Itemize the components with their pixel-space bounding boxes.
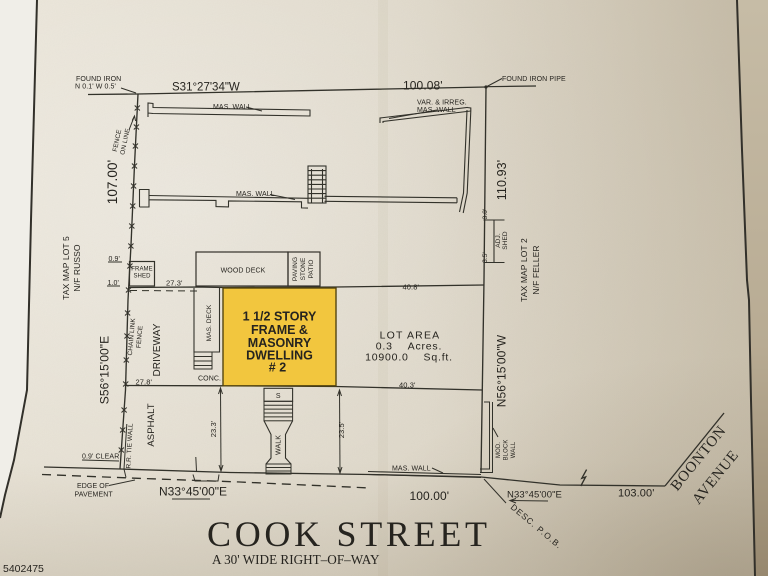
svg-text:WALL: WALL bbox=[511, 441, 517, 458]
svg-text:23.5': 23.5' bbox=[337, 421, 346, 438]
svg-text:1.0': 1.0' bbox=[108, 280, 119, 287]
svg-text:40.8': 40.8' bbox=[403, 283, 420, 292]
svg-text:TAX MAP LOT 5: TAX MAP LOT 5 bbox=[61, 236, 71, 300]
svg-text:DRIVEWAY: DRIVEWAY bbox=[152, 323, 163, 376]
svg-text:ASPHALT: ASPHALT bbox=[146, 403, 157, 446]
svg-text:FOUND IRON PIPE: FOUND IRON PIPE bbox=[502, 76, 566, 83]
svg-text:3.5': 3.5' bbox=[482, 252, 489, 263]
svg-text:MAS. WALL: MAS. WALL bbox=[417, 107, 456, 114]
svg-text:WALK: WALK bbox=[276, 435, 283, 455]
svg-text:PATIO: PATIO bbox=[308, 259, 315, 278]
svg-text:27.8': 27.8' bbox=[136, 378, 153, 387]
svg-text:40.3': 40.3' bbox=[399, 381, 416, 390]
svg-text:1 1/2 STORY: 1 1/2 STORY bbox=[243, 310, 317, 324]
svg-text:5402475: 5402475 bbox=[3, 563, 44, 575]
svg-text:MOD.: MOD. bbox=[496, 442, 502, 458]
svg-text:BLOCK: BLOCK bbox=[504, 440, 510, 461]
svg-text:S56°15'00"E: S56°15'00"E bbox=[98, 336, 112, 405]
svg-text:MAS. DECK: MAS. DECK bbox=[206, 304, 213, 341]
svg-text:FRAME: FRAME bbox=[131, 267, 153, 273]
svg-text:ADJ.: ADJ. bbox=[495, 233, 502, 248]
svg-text:100.00': 100.00' bbox=[410, 489, 450, 503]
svg-text:110.93': 110.93' bbox=[495, 160, 509, 200]
svg-text:10900.0 Sq.ft.: 10900.0 Sq.ft. bbox=[365, 352, 453, 364]
svg-text:3.0': 3.0' bbox=[482, 209, 489, 220]
svg-text:N33°45'00"E: N33°45'00"E bbox=[507, 490, 562, 501]
svg-text:0.9' CLEAR: 0.9' CLEAR bbox=[82, 454, 119, 461]
svg-text:S: S bbox=[276, 393, 281, 400]
svg-text:N 0.1' W 0.5': N 0.1' W 0.5' bbox=[75, 84, 116, 91]
svg-text:107.00': 107.00' bbox=[105, 160, 120, 205]
svg-text:# 2: # 2 bbox=[269, 361, 286, 375]
svg-text:TAX MAP LOT 2: TAX MAP LOT 2 bbox=[519, 238, 529, 302]
svg-text:0.9': 0.9' bbox=[109, 256, 120, 263]
svg-text:SHED: SHED bbox=[133, 274, 151, 280]
svg-text:N56°15'00"W: N56°15'00"W bbox=[495, 334, 509, 407]
svg-text:PAVEMENT: PAVEMENT bbox=[75, 492, 114, 499]
svg-text:N/F FELLER: N/F FELLER bbox=[531, 245, 541, 294]
svg-text:MAS. WALL: MAS. WALL bbox=[236, 191, 275, 198]
svg-text:VAR. & IRREG.: VAR. & IRREG. bbox=[417, 100, 467, 107]
svg-text:A 30' WIDE RIGHT–OF–WAY: A 30' WIDE RIGHT–OF–WAY bbox=[212, 552, 380, 567]
svg-text:FRAME &: FRAME & bbox=[251, 323, 308, 337]
svg-text:PAVING: PAVING bbox=[292, 257, 299, 281]
svg-text:COOK STREET: COOK STREET bbox=[207, 514, 491, 554]
svg-text:S31°27'34"W: S31°27'34"W bbox=[172, 82, 240, 94]
svg-text:EDGE OF: EDGE OF bbox=[77, 483, 109, 490]
svg-text:MAS. WALL: MAS. WALL bbox=[392, 466, 431, 473]
svg-text:100.08': 100.08' bbox=[403, 79, 443, 93]
svg-text:WOOD DECK: WOOD DECK bbox=[221, 268, 266, 275]
svg-text:STONE: STONE bbox=[300, 257, 307, 280]
svg-text:FOUND IRON: FOUND IRON bbox=[76, 76, 121, 83]
svg-text:103.00': 103.00' bbox=[618, 488, 654, 500]
svg-text:SHED: SHED bbox=[502, 231, 509, 250]
svg-text:MAS. WALL: MAS. WALL bbox=[213, 104, 252, 111]
svg-text:N/F RUSSO: N/F RUSSO bbox=[72, 244, 82, 291]
svg-text:N33°45'00"E: N33°45'00"E bbox=[159, 485, 227, 499]
svg-text:27.3': 27.3' bbox=[166, 279, 183, 288]
svg-text:23.3': 23.3' bbox=[209, 420, 218, 437]
svg-text:CONC.: CONC. bbox=[198, 376, 221, 383]
